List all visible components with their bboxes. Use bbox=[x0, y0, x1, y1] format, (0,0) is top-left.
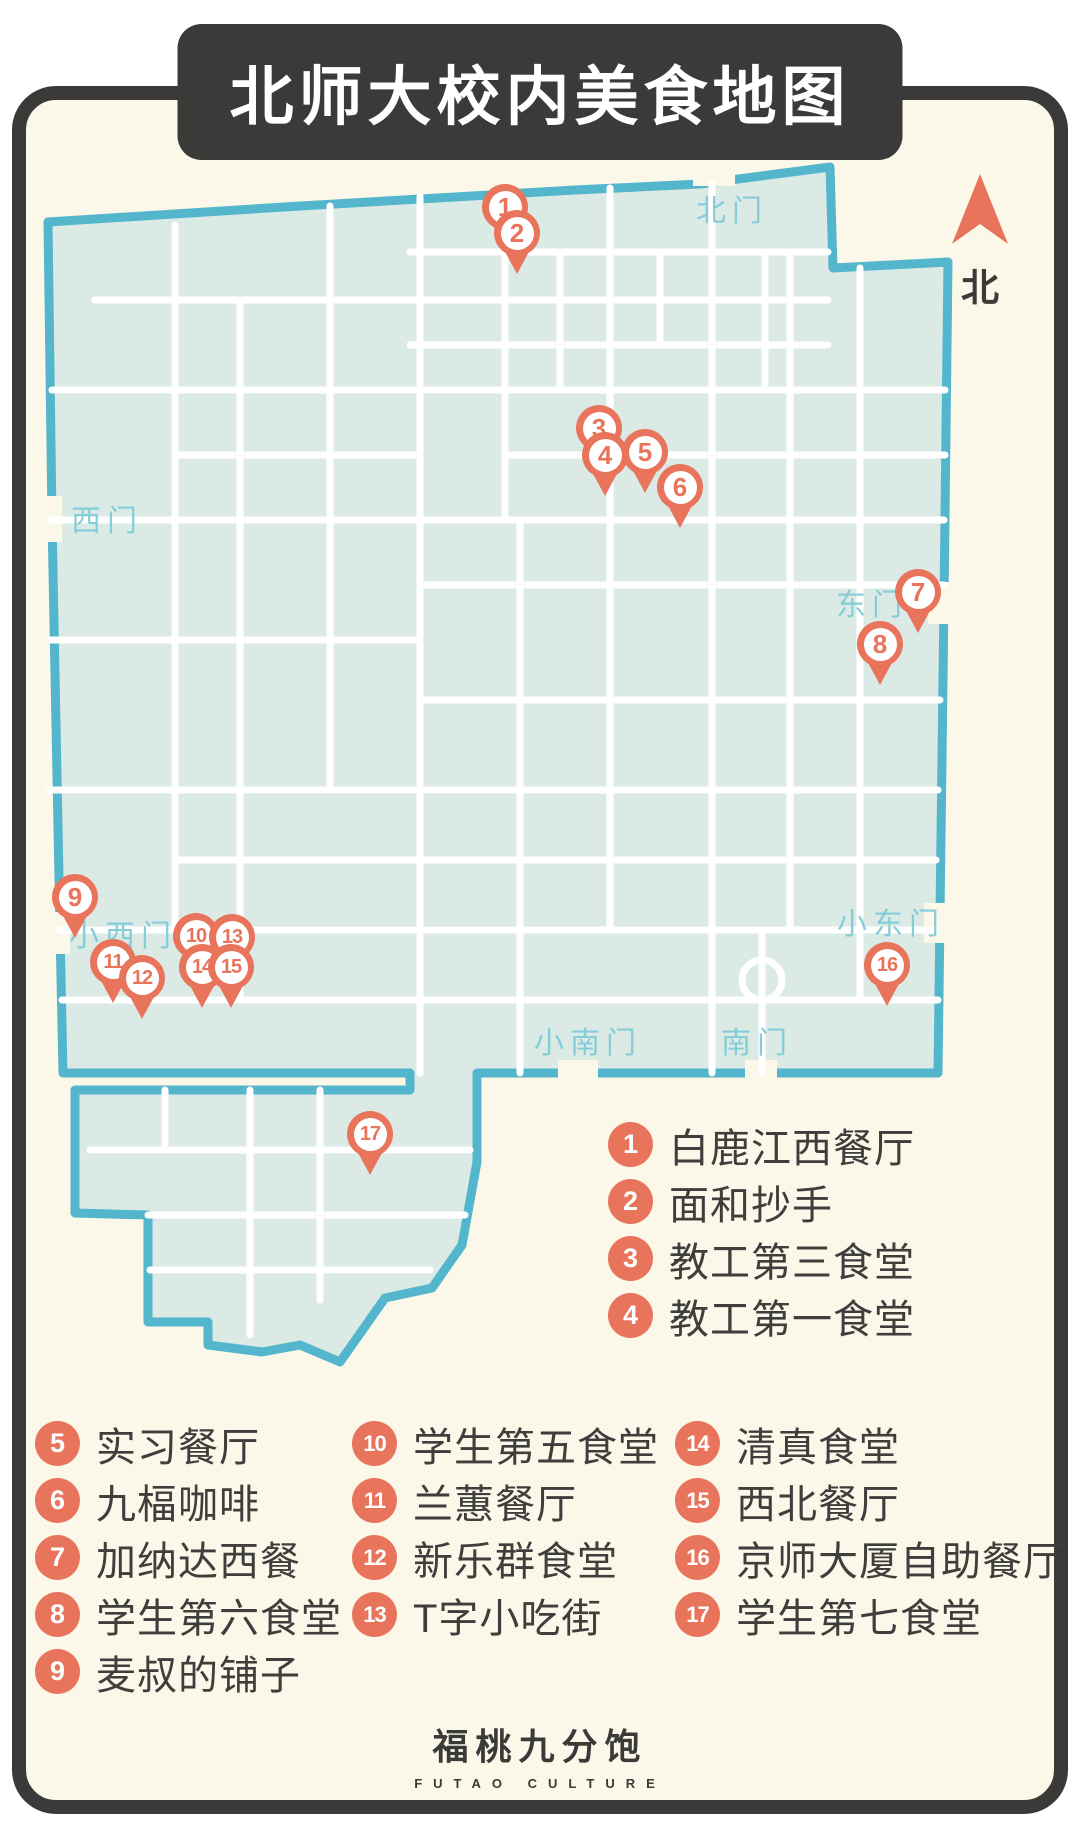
legend-label-3: 教工第三食堂 bbox=[669, 1230, 915, 1288]
gate-label-north-gate: 北门 bbox=[696, 186, 768, 230]
legend-label-17: 学生第七食堂 bbox=[736, 1586, 982, 1644]
legend-item-4: 4教工第一食堂 bbox=[608, 1287, 915, 1344]
legend-label-1: 白鹿江西餐厅 bbox=[669, 1116, 915, 1174]
legend-number-13: 13 bbox=[352, 1592, 397, 1637]
legend-item-10: 10学生第五食堂 bbox=[352, 1415, 659, 1472]
legend-label-14: 清真食堂 bbox=[736, 1415, 900, 1473]
legend-column-2: 10学生第五食堂11兰蕙餐厅12新乐群食堂13T字小吃街 bbox=[352, 1415, 659, 1643]
legend-label-6: 九楅咖啡 bbox=[96, 1472, 260, 1530]
map-pin-number-7: 7 bbox=[902, 576, 935, 609]
legend-item-13: 13T字小吃街 bbox=[352, 1586, 659, 1643]
legend-primary: 1白鹿江西餐厅2面和抄手3教工第三食堂4教工第一食堂 bbox=[608, 1116, 915, 1344]
legend-item-1: 1白鹿江西餐厅 bbox=[608, 1116, 915, 1173]
map-pin-number-6: 6 bbox=[664, 471, 697, 504]
map-pin-head-17: 17 bbox=[347, 1111, 393, 1157]
map-pin-2[interactable]: 2 bbox=[494, 210, 540, 276]
legend-label-10: 学生第五食堂 bbox=[413, 1415, 659, 1473]
legend-number-15: 15 bbox=[675, 1478, 720, 1523]
legend-item-17: 17学生第七食堂 bbox=[675, 1586, 1064, 1643]
map-pin-head-2: 2 bbox=[494, 210, 540, 256]
legend-item-15: 15西北餐厅 bbox=[675, 1472, 1064, 1529]
legend-number-5: 5 bbox=[35, 1421, 80, 1466]
legend-item-14: 14清真食堂 bbox=[675, 1415, 1064, 1472]
logo-subtext: FUTAO CULTURE bbox=[0, 1776, 1080, 1791]
map-pin-9[interactable]: 9 bbox=[52, 874, 98, 940]
footer-logo: 福桃九分饱 FUTAO CULTURE bbox=[0, 1718, 1080, 1791]
legend-number-6: 6 bbox=[35, 1478, 80, 1523]
poster-canvas: 北门西门东门小西门小东门小南门南门12345678910111213141516… bbox=[0, 0, 1080, 1826]
map-pin-number-4: 4 bbox=[589, 439, 622, 472]
legend-item-7: 7加纳达西餐 bbox=[35, 1529, 342, 1586]
legend-item-12: 12新乐群食堂 bbox=[352, 1529, 659, 1586]
map-pin-number-8: 8 bbox=[864, 628, 897, 661]
legend-item-16: 16京师大厦自助餐厅 bbox=[675, 1529, 1064, 1586]
legend-column-3: 14清真食堂15西北餐厅16京师大厦自助餐厅17学生第七食堂 bbox=[675, 1415, 1064, 1643]
legend-label-4: 教工第一食堂 bbox=[669, 1287, 915, 1345]
legend-item-9: 9麦叔的铺子 bbox=[35, 1643, 342, 1700]
legend-number-17: 17 bbox=[675, 1592, 720, 1637]
legend-item-5: 5实习餐厅 bbox=[35, 1415, 342, 1472]
map-pin-8[interactable]: 8 bbox=[857, 621, 903, 687]
map-pin-number-2: 2 bbox=[501, 217, 534, 250]
page-title: 北师大校内美食地图 bbox=[178, 24, 903, 160]
north-arrow-icon bbox=[948, 172, 1012, 248]
legend-item-8: 8学生第六食堂 bbox=[35, 1586, 342, 1643]
legend-label-8: 学生第六食堂 bbox=[96, 1586, 342, 1644]
legend-number-10: 10 bbox=[352, 1421, 397, 1466]
compass: 北 bbox=[948, 172, 1012, 312]
map-pin-16[interactable]: 16 bbox=[864, 942, 910, 1008]
legend-number-3: 3 bbox=[608, 1236, 653, 1281]
legend-number-2: 2 bbox=[608, 1179, 653, 1224]
legend-column-1: 5实习餐厅6九楅咖啡7加纳达西餐8学生第六食堂9麦叔的铺子 bbox=[35, 1415, 342, 1700]
compass-north-label: 北 bbox=[948, 257, 1012, 312]
map-pin-number-16: 16 bbox=[871, 949, 904, 982]
legend-number-1: 1 bbox=[608, 1122, 653, 1167]
legend-label-11: 兰蕙餐厅 bbox=[413, 1472, 577, 1530]
legend-number-7: 7 bbox=[35, 1535, 80, 1580]
map-pin-head-6: 6 bbox=[657, 464, 703, 510]
legend-label-15: 西北餐厅 bbox=[736, 1472, 900, 1530]
map-pin-head-12: 12 bbox=[119, 955, 165, 1001]
map-pin-6[interactable]: 6 bbox=[657, 464, 703, 530]
legend-number-8: 8 bbox=[35, 1592, 80, 1637]
map-pin-number-12: 12 bbox=[126, 962, 159, 995]
map-pin-number-15: 15 bbox=[215, 951, 248, 984]
legend-label-7: 加纳达西餐 bbox=[96, 1529, 301, 1587]
legend-label-9: 麦叔的铺子 bbox=[96, 1643, 301, 1701]
legend-number-11: 11 bbox=[352, 1478, 397, 1523]
map-pin-head-9: 9 bbox=[52, 874, 98, 920]
map-pin-12[interactable]: 12 bbox=[119, 955, 165, 1021]
map-pin-number-17: 17 bbox=[354, 1118, 387, 1151]
legend-label-5: 实习餐厅 bbox=[96, 1415, 260, 1473]
gate-label-south-gate: 南门 bbox=[721, 1018, 793, 1062]
logo-text: 福桃九分饱 bbox=[0, 1718, 1080, 1770]
gate-label-small-south-gate: 小南门 bbox=[534, 1018, 642, 1062]
map-pin-head-16: 16 bbox=[864, 942, 910, 988]
map-pin-15[interactable]: 15 bbox=[208, 944, 254, 1010]
legend-label-16: 京师大厦自助餐厅 bbox=[736, 1529, 1064, 1587]
legend-number-14: 14 bbox=[675, 1421, 720, 1466]
map-pin-head-7: 7 bbox=[895, 569, 941, 615]
legend-item-2: 2面和抄手 bbox=[608, 1173, 915, 1230]
map-pin-17[interactable]: 17 bbox=[347, 1111, 393, 1177]
legend-item-6: 6九楅咖啡 bbox=[35, 1472, 342, 1529]
legend-number-9: 9 bbox=[35, 1649, 80, 1694]
map-pin-number-9: 9 bbox=[59, 881, 92, 914]
map-pin-head-15: 15 bbox=[208, 944, 254, 990]
gate-label-small-east-gate: 小东门 bbox=[837, 899, 945, 943]
gate-label-west-gate: 西门 bbox=[71, 496, 143, 540]
legend-label-13: T字小吃街 bbox=[413, 1586, 602, 1644]
legend-item-11: 11兰蕙餐厅 bbox=[352, 1472, 659, 1529]
legend-label-2: 面和抄手 bbox=[669, 1173, 833, 1231]
legend-number-4: 4 bbox=[608, 1293, 653, 1338]
legend-label-12: 新乐群食堂 bbox=[413, 1529, 618, 1587]
legend-number-12: 12 bbox=[352, 1535, 397, 1580]
legend-number-16: 16 bbox=[675, 1535, 720, 1580]
legend-item-3: 3教工第三食堂 bbox=[608, 1230, 915, 1287]
map-pin-head-8: 8 bbox=[857, 621, 903, 667]
